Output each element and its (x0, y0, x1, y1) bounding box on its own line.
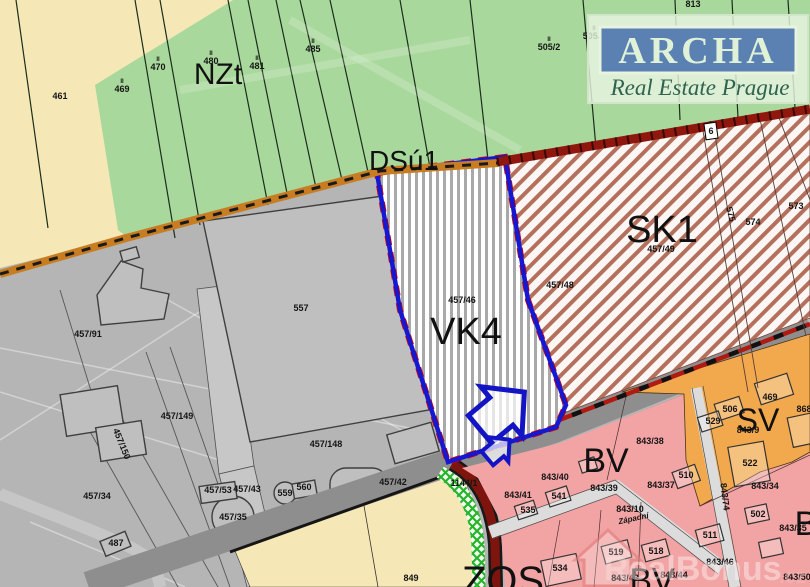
archa-title: ARCHA (618, 30, 777, 72)
parcel-label: 511 (703, 530, 718, 540)
parcel-label: 573 (788, 201, 803, 211)
parcel-label: 6 (708, 126, 713, 136)
realbonus-name: RealBonus (604, 550, 782, 587)
parcel-label: 457/46 (448, 295, 476, 305)
parcel-label: 529 (705, 416, 720, 426)
parcel-label: 457/35 (219, 512, 247, 522)
parcel-label: 510 (678, 470, 693, 480)
parcel-label: 560 (296, 482, 311, 492)
parcel-tick-mark: II (255, 56, 259, 62)
parcel-label: 559 (277, 488, 292, 498)
parcel-label: 843/34 (751, 481, 779, 491)
parcel-tick-mark: II (311, 39, 315, 45)
parcel-label: 505/2 (538, 42, 561, 52)
zone-label-bv-upper: BV (583, 442, 629, 480)
parcel-label: 843/41 (504, 490, 532, 500)
parcel-label: 843/35 (779, 523, 807, 533)
zone-label-vk4: VK4 (430, 311, 502, 353)
parcel-tick-mark: II (156, 57, 160, 63)
parcel-label: 469 (114, 84, 129, 94)
parcel-label: 470 (150, 62, 165, 72)
parcel-label: 469 (762, 392, 777, 402)
parcel-label: 461 (52, 91, 67, 101)
parcel-label: 843/9 (737, 425, 760, 435)
parcel-tick-mark: II (120, 79, 124, 85)
parcel-label: 843/40 (541, 472, 569, 482)
zone-label-zos: ZOS (462, 559, 544, 587)
parcel-label: 574 (745, 217, 760, 227)
parcel-label: 534 (552, 563, 567, 573)
parcel-label: 457/91 (74, 329, 102, 339)
parcel-label: 1144/1 (450, 478, 477, 488)
parcel-label: 843/38 (636, 436, 664, 446)
parcel-label: 506 (722, 404, 737, 414)
parcel-label: 487 (108, 538, 123, 548)
parcel-tick-mark: II (209, 51, 213, 57)
parcel-label: 457/34 (83, 491, 111, 501)
parcel-label: 535 (520, 505, 535, 515)
archa-watermark: ARCHA Real Estate Prague (588, 15, 808, 103)
parcel-label: 457/49 (647, 244, 675, 254)
parcel-label: 457/42 (379, 477, 407, 487)
parcel-label: 457/53 (204, 485, 232, 495)
parcel-label: 522 (742, 458, 757, 468)
parcel-label: 813 (685, 0, 700, 9)
parcel-label: 457/43 (233, 484, 261, 494)
zoning-map-svg: NZtDSú1VK4SK1BVSVBBVZOS461469II470II480I… (0, 0, 810, 587)
parcel-label: 849 (403, 573, 418, 583)
parcel-label: 457/149 (161, 411, 194, 421)
parcel-label: 502 (750, 509, 765, 519)
zoning-map-screenshot: NZtDSú1VK4SK1BVSVBBVZOS461469II470II480I… (0, 0, 810, 587)
parcel-label: 481 (249, 61, 264, 71)
archa-subtitle: Real Estate Prague (610, 75, 790, 100)
parcel-label: 868 (796, 404, 810, 414)
parcel-label: 557 (293, 303, 308, 313)
parcel-label: 541 (551, 491, 566, 501)
parcel-label: 843/39 (590, 483, 618, 493)
parcel-label: 485 (305, 44, 320, 54)
parcel-label: 457/48 (546, 280, 574, 290)
parcel-label: 843/37 (647, 480, 675, 490)
parcel-label: 480 (203, 56, 218, 66)
parcel-tick-mark: II (547, 37, 551, 43)
realbonus-tld: .cz (779, 566, 806, 587)
zone-label-dsu1: DSú1 (369, 145, 439, 176)
parcel-label: 457/148 (310, 439, 343, 449)
